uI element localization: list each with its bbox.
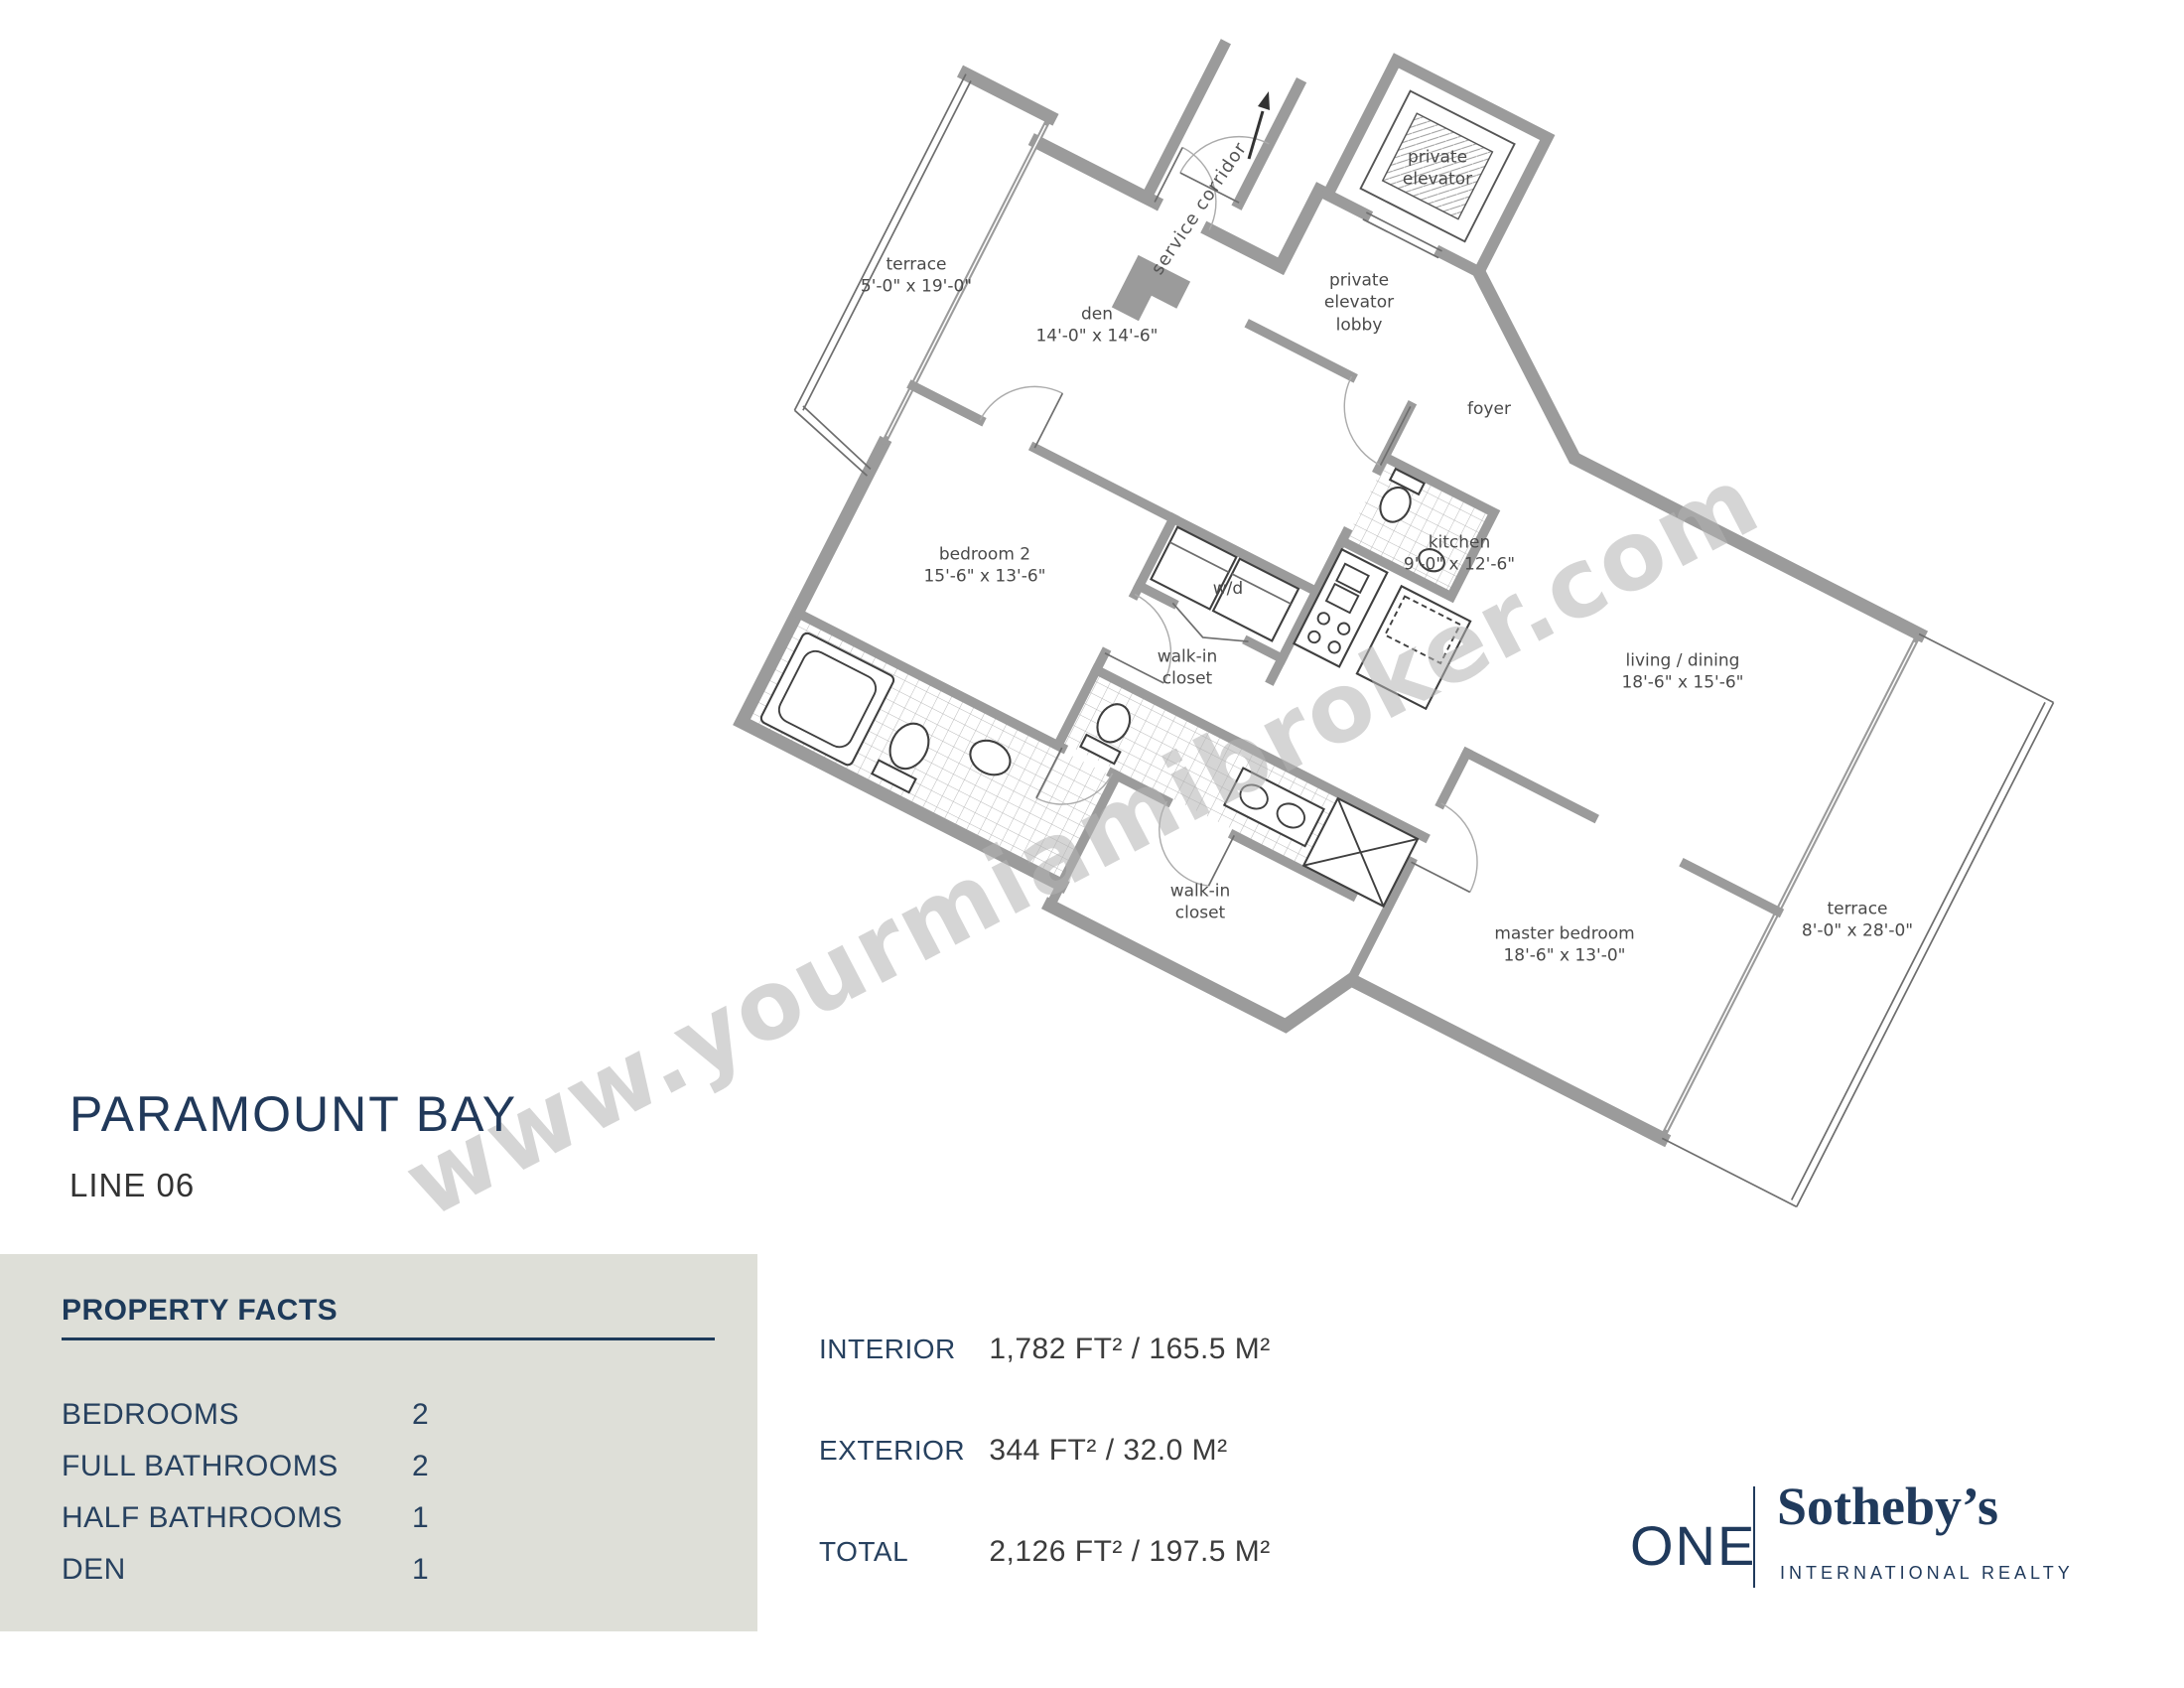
room-label-master-bedroom: master bedroom 18'-6" x 13'-0" [1494,923,1634,968]
logo-subtitle-text: INTERNATIONAL REALTY [1780,1563,2074,1584]
building-title: PARAMOUNT BAY [69,1085,517,1143]
room-label-den: den 14'-0" x 14'-6" [1035,304,1158,349]
heading-underline [62,1337,715,1340]
logo-brand-text: Sotheby’s [1777,1476,1998,1537]
line-title: LINE 06 [69,1167,195,1204]
logo-divider [1753,1486,1755,1588]
property-facts-heading: PROPERTY FACTS [62,1294,338,1328]
room-label-private-elevator-lobby: private elevator lobby [1324,269,1394,336]
room-label-walk-in-closet-1: walk-in closet [1158,646,1218,691]
room-label-terrace-right: terrace 8'-0" x 28'-0" [1802,899,1913,943]
room-label-terrace-left: terrace 5'-0" x 19'-0" [861,254,972,299]
area-row-interior: INTERIOR 1,782 FT² / 165.5 M² [819,1333,1271,1366]
logo-one-text: ONE [1630,1513,1756,1578]
room-label-foyer: foyer [1467,398,1511,420]
room-label-bedroom-2: bedroom 2 15'-6" x 13'-6" [923,544,1045,589]
area-row-exterior: EXTERIOR 344 FT² / 32.0 M² [819,1434,1228,1468]
room-label-walk-in-closet-2: walk-in closet [1170,881,1231,925]
fact-row-den: DEN 1 [62,1553,677,1587]
fact-row-bedrooms: BEDROOMS 2 [62,1398,677,1432]
area-row-total: TOTAL 2,126 FT² / 197.5 M² [819,1535,1271,1569]
room-label-living-dining: living / dining 18'-6" x 15'-6" [1621,650,1743,695]
fact-row-half-bathrooms: HALF BATHROOMS 1 [62,1501,677,1535]
flyer-page: terrace 5'-0" x 19'-0" den 14'-0" x 14'-… [0,0,2184,1688]
room-label-washer-dryer: w/d [1213,578,1243,600]
fact-row-full-bathrooms: FULL BATHROOMS 2 [62,1450,677,1483]
one-sothebys-logo: ONE Sotheby’s INTERNATIONAL REALTY [1588,1460,2144,1618]
property-facts-panel: PROPERTY FACTS BEDROOMS 2 FULL BATHROOMS… [0,1254,757,1631]
room-label-private-elevator: private elevator [1403,147,1472,192]
